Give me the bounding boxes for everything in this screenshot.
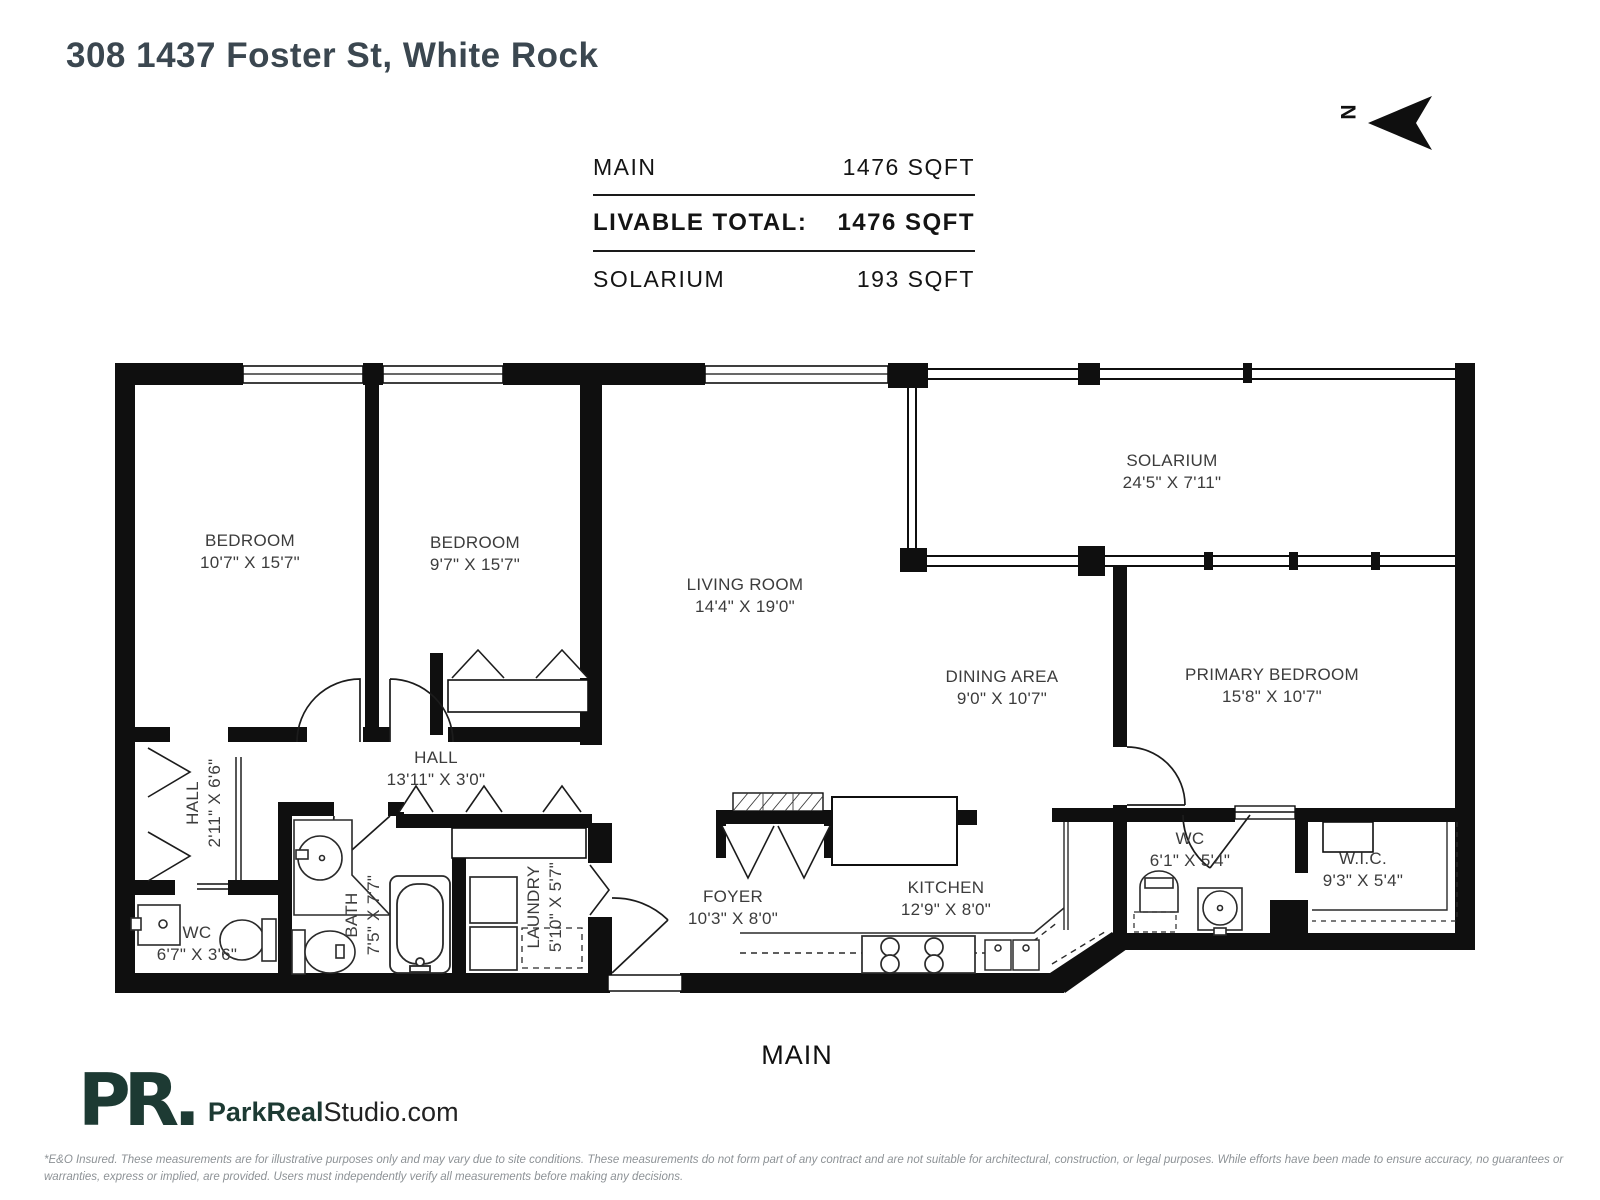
room-dims: 24'5" X 7'11"	[1123, 472, 1222, 494]
room-dims: 10'7" X 15'7"	[200, 552, 300, 574]
room-name: FOYER	[688, 886, 778, 908]
room-dims: 6'1" X 5'4"	[1150, 850, 1230, 872]
room-dims: 10'3" X 8'0"	[688, 908, 778, 930]
room-dims: 13'11" X 3'0"	[387, 769, 486, 791]
room-name: W.I.C.	[1323, 848, 1403, 870]
room-label-laundry: LAUNDRY 5'10" X 5'7"	[523, 862, 567, 952]
room-name: HALL	[387, 747, 486, 769]
logo-mark-icon: PR.	[78, 1068, 194, 1132]
room-label-bedroom: BEDROOM 9'7" X 15'7"	[430, 532, 520, 576]
room-dims: 9'3" X 5'4"	[1323, 870, 1403, 892]
room-label-hall: HALL 13'11" X 3'0"	[387, 747, 486, 791]
stove-icon	[862, 936, 975, 973]
hatched-shelf	[733, 793, 823, 811]
disclaimer-text: *E&O Insured. These measurements are for…	[44, 1152, 1564, 1185]
room-dims: 15'8" X 10'7"	[1185, 686, 1359, 708]
wc-sink-icon	[1198, 888, 1242, 935]
room-dims: 14'4" X 19'0"	[687, 596, 804, 618]
room-label-wic: W.I.C. 9'3" X 5'4"	[1323, 848, 1403, 892]
room-label-bedroom: BEDROOM 10'7" X 15'7"	[200, 530, 300, 574]
room-name: LAUNDRY	[523, 862, 545, 952]
parkreal-logo: PR. ParkRealStudio.com	[78, 1068, 459, 1132]
kitchen-sink-icon	[985, 940, 1039, 970]
room-name: WC	[1150, 828, 1230, 850]
room-name: BATH	[341, 875, 363, 955]
floor-name-label: MAIN	[761, 1040, 833, 1071]
room-name: BEDROOM	[430, 532, 520, 554]
room-label-primary-bedroom: PRIMARY BEDROOM 15'8" X 10'7"	[1185, 664, 1359, 708]
room-name: WC	[157, 922, 237, 944]
room-dims: 9'7" X 15'7"	[430, 554, 520, 576]
washer-dryer-icon	[470, 877, 517, 970]
room-dims: 6'7" X 3'6"	[157, 944, 237, 966]
room-label-wc: WC 6'1" X 5'4"	[1150, 828, 1230, 872]
room-label-hall-vertical: HALL 2'11" X 6'6"	[182, 759, 226, 848]
toilet-icon	[1134, 871, 1178, 932]
room-name: SOLARIUM	[1123, 450, 1222, 472]
logo-wordmark: ParkRealStudio.com	[208, 1097, 459, 1128]
room-label-foyer: FOYER 10'3" X 8'0"	[688, 886, 778, 930]
room-dims: 9'0" X 10'7"	[946, 688, 1059, 710]
room-dims: 12'9" X 8'0"	[901, 899, 991, 921]
room-label-living-room: LIVING ROOM 14'4" X 19'0"	[687, 574, 804, 618]
room-dims: 7'5" X 7'7"	[363, 875, 385, 955]
entry-threshold	[608, 975, 682, 991]
room-dims: 5'10" X 5'7"	[545, 862, 567, 952]
bathtub-icon	[390, 876, 450, 973]
room-label-kitchen: KITCHEN 12'9" X 8'0"	[901, 877, 991, 921]
room-name: PRIMARY BEDROOM	[1185, 664, 1359, 686]
logo-word-bold: ParkReal	[208, 1097, 324, 1127]
room-name: LIVING ROOM	[687, 574, 804, 596]
room-label-bath: BATH 7'5" X 7'7"	[341, 875, 385, 955]
room-name: DINING AREA	[946, 666, 1059, 688]
logo-word-regular: Studio.com	[324, 1097, 459, 1127]
room-label-solarium: SOLARIUM 24'5" X 7'11"	[1123, 450, 1222, 494]
room-name: KITCHEN	[901, 877, 991, 899]
kitchen-island	[832, 797, 957, 865]
room-dims: 2'11" X 6'6"	[204, 759, 226, 848]
north-arrow-icon	[1368, 96, 1432, 150]
room-label-wc: WC 6'7" X 3'6"	[157, 922, 237, 966]
room-name: HALL	[182, 759, 204, 848]
room-label-dining-area: DINING AREA 9'0" X 10'7"	[946, 666, 1059, 710]
room-name: BEDROOM	[200, 530, 300, 552]
